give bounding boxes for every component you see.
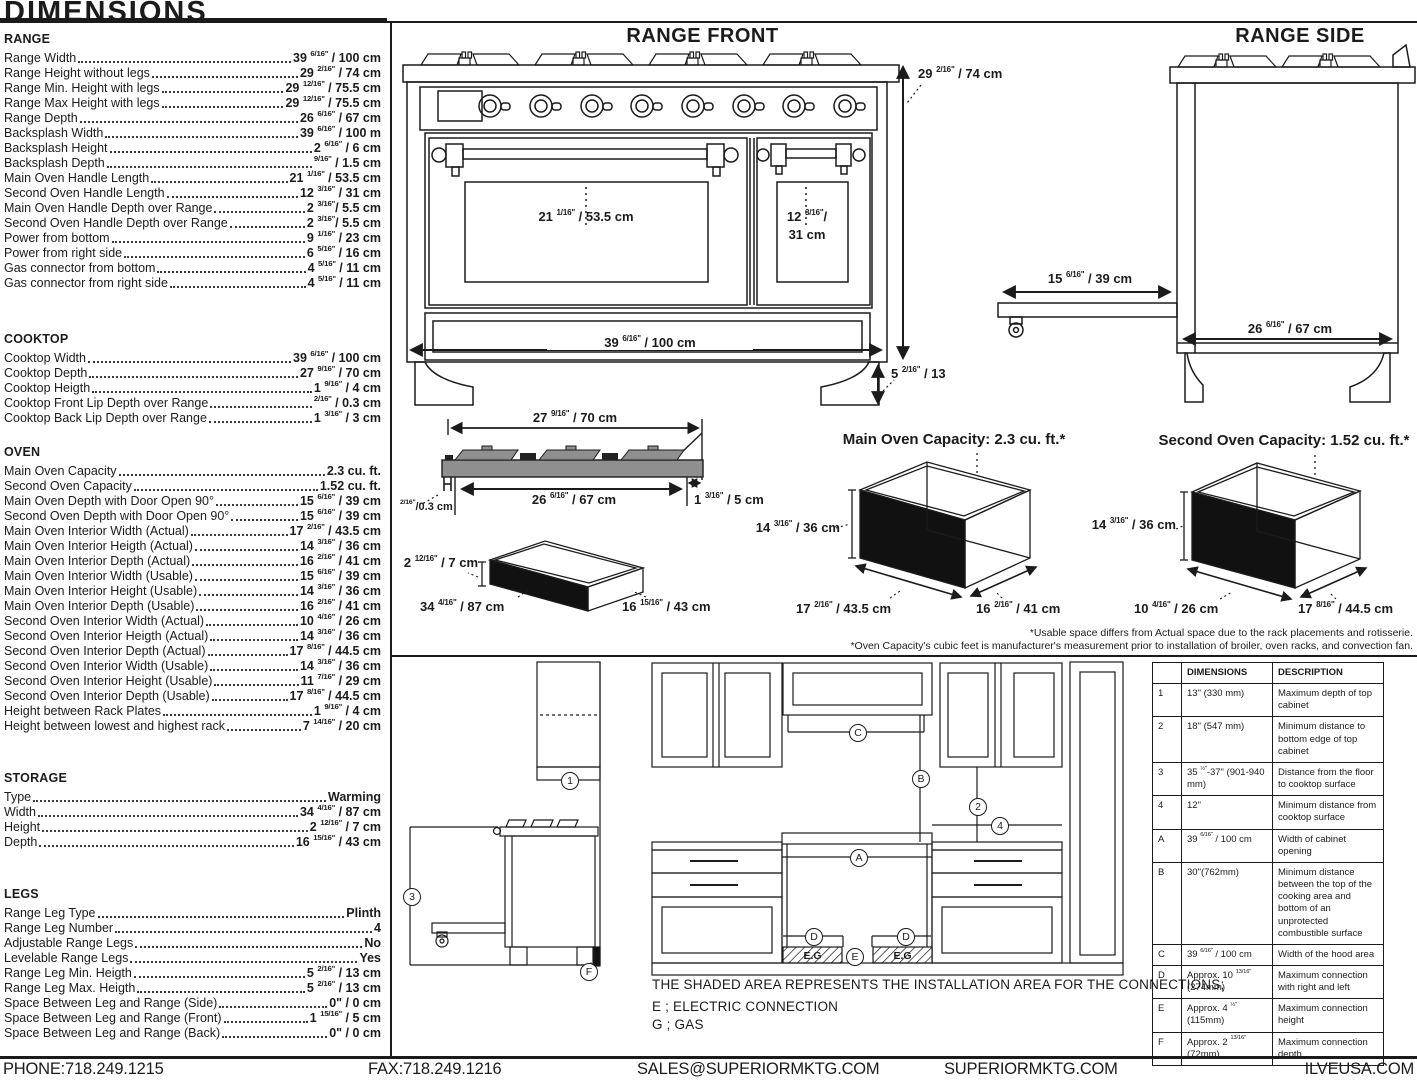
footnote-capacity: *Oven Capacity's cubic feet is manufactu…	[613, 640, 1413, 653]
main-oven-window	[465, 182, 708, 282]
spec-row: Gas connector from bottom 4 5/16" / 11 c…	[4, 260, 381, 275]
spec-label: Backsplash Height	[4, 141, 108, 155]
dotted-leader	[112, 241, 305, 243]
spec-row: Adjustable Range Legs No	[4, 935, 381, 950]
label-leg-height: 5 2/16" / 13	[891, 366, 946, 381]
dotted-leader	[162, 106, 284, 108]
spec-value: 14 3/16" / 36 cm	[300, 584, 381, 598]
table-cell-id: 4	[1153, 796, 1182, 829]
dotted-leader	[196, 609, 298, 611]
spec-row: Second Oven Handle Depth over Range 2 3/…	[4, 215, 381, 230]
burner-profile	[455, 446, 684, 460]
label-second-oven-width: 10 4/16" / 26 cm	[1134, 601, 1218, 616]
spec-value: 16 15/16" / 43 cm	[296, 835, 381, 849]
label-second-oven-height: 14 3/16" / 36 cm	[1090, 517, 1176, 532]
spec-value: 14 3/16" / 36 cm	[300, 659, 381, 673]
footer-website: SUPERIORMKTG.COM	[944, 1060, 1118, 1079]
side-view-range-body	[505, 836, 595, 947]
dotted-leader	[162, 91, 284, 93]
table-row: 3 35 ½"-37" (901-940 mm) Distance from t…	[1153, 762, 1384, 795]
spec-label: Main Oven Depth with Door Open 90°	[4, 494, 214, 508]
dotted-leader	[210, 669, 298, 671]
spec-label: Main Oven Handle Length	[4, 171, 149, 185]
label-range-height: 29 2/16" / 74 cm	[918, 66, 1002, 81]
label-back-lip: 1 3/16" / 5 cm	[694, 492, 764, 507]
spec-label: Height	[4, 820, 40, 834]
table-cell-description: Maximum connection height	[1273, 999, 1384, 1032]
spec-value: 34 4/16" / 87 cm	[300, 805, 381, 819]
spec-label: Main Oven Interior Height (Usable)	[4, 584, 197, 598]
control-panel	[420, 87, 877, 130]
marker-circle-2: 2	[969, 798, 987, 816]
section-header: RANGE	[4, 32, 381, 50]
label-drawer-extension: 15 6/16" / 39 cm	[1010, 271, 1170, 286]
range-front-drawing	[395, 25, 1010, 423]
table-cell-description: Distance from the floor to cooktop surfa…	[1273, 762, 1384, 795]
table-row: C 39 6/16" / 100 cm Width of the hood ar…	[1153, 944, 1384, 965]
spec-row: Main Oven Interior Width (Usable) 15 6/1…	[4, 568, 381, 583]
spec-label: Second Oven Interior Width (Actual)	[4, 614, 204, 628]
spec-row: Range Min. Height with legs 29 12/16" / …	[4, 80, 381, 95]
table-cell-id: 2	[1153, 717, 1182, 762]
spec-value: 11 7/16" / 29 cm	[301, 674, 381, 688]
spec-row: Second Oven Interior Width (Usable) 14 3…	[4, 658, 381, 673]
main-oven-handle	[432, 144, 738, 176]
spec-label: Second Oven Handle Length	[4, 186, 165, 200]
spec-row: Main Oven Handle Length 21 1/16" / 53.5 …	[4, 170, 381, 185]
label-main-oven-width: 17 2/16" / 43.5 cm	[796, 601, 891, 616]
dotted-leader	[42, 830, 308, 832]
spec-row: Height between lowest and highest rack 7…	[4, 718, 381, 733]
table-cell-id: B	[1153, 862, 1182, 944]
dotted-leader	[107, 166, 312, 168]
section-header: STORAGE	[4, 771, 381, 789]
label-second-oven-depth: 17 8/16" / 44.5 cm	[1298, 601, 1393, 616]
table-cell-dimension: Approx. 4 ½" (115mm)	[1182, 999, 1273, 1032]
dotted-leader	[110, 151, 312, 153]
spec-value: 1.52 cu. ft.	[320, 479, 381, 493]
spec-label: Range Leg Max. Heigth	[4, 981, 135, 995]
spec-value: 39 6/16" / 100 cm	[293, 51, 381, 65]
spec-value: 14 3/16" / 36 cm	[300, 629, 381, 643]
table-cell-dimension: Approx. 10 13/16" (274mm)	[1182, 965, 1273, 998]
backsplash-profile	[1393, 45, 1410, 67]
spec-section-legs: LEGS Range Leg Type Plinth Range Leg Num…	[4, 887, 381, 1040]
spec-label: Main Oven Handle Depth over Range	[4, 201, 212, 215]
table-cell-dimension: 39 6/16" / 100 cm	[1182, 944, 1273, 965]
spec-row: Range Width 39 6/16" / 100 cm	[4, 50, 381, 65]
spec-row: Main Oven Handle Depth over Range 2 3/16…	[4, 200, 381, 215]
spec-label: Width	[4, 805, 36, 819]
spec-rows-storage: Type Warming Width 34 4/16" / 87 cm Heig…	[4, 789, 381, 849]
marker-circle-a: A	[850, 849, 868, 867]
range-front-title: RANGE FRONT	[395, 25, 1010, 48]
dotted-leader	[231, 519, 298, 521]
spec-section-range: RANGE Range Width 39 6/16" / 100 cm Rang…	[4, 32, 381, 290]
table-body: 1 13" (330 mm) Maximum depth of top cabi…	[1153, 684, 1384, 1066]
table-row: 2 18" (547 mm) Minimum distance to botto…	[1153, 717, 1384, 762]
side-cooktop-lip	[1170, 67, 1415, 83]
marker-circle-d-right: D	[897, 928, 915, 946]
label-cooktop-bottom-width: 26 6/16" / 67 cm	[474, 492, 674, 507]
spec-row: Range Leg Max. Heigth 5 2/16" / 13 cm	[4, 980, 381, 995]
footer-fax: FAX:718.249.1216	[368, 1060, 502, 1079]
dotted-leader	[210, 639, 298, 641]
spec-value: 17 8/16" / 44.5 cm	[290, 689, 381, 703]
spec-label: Gas connector from right side	[4, 276, 168, 290]
dotted-leader	[214, 684, 298, 686]
spec-label: Main Oven Interior Depth (Actual)	[4, 554, 190, 568]
dotted-leader	[130, 961, 357, 963]
dotted-leader	[33, 800, 326, 802]
dotted-leader	[119, 474, 325, 476]
spec-label: Levelable Range Legs	[4, 951, 128, 965]
spec-row: Range Height without legs 29 2/16" / 74 …	[4, 65, 381, 80]
dotted-leader	[224, 1021, 308, 1023]
spec-row: Space Between Leg and Range (Front) 1 15…	[4, 1010, 381, 1025]
table-cell-dimension: 39 6/16" / 100 cm	[1182, 829, 1273, 862]
table-header-empty	[1153, 663, 1182, 684]
spec-value: 39 6/16" / 100 cm	[293, 351, 381, 365]
spec-value: 1 9/16" / 4 cm	[314, 381, 381, 395]
footer-brand-site: ILVEUSA.COM	[1305, 1060, 1414, 1079]
spec-value: 16 2/16" / 41 cm	[300, 554, 381, 568]
installation-note: THE SHADED AREA REPRESENTS THE INSTALLAT…	[652, 977, 1224, 992]
label-second-handle-length-1: 12 3/16"/	[757, 209, 857, 224]
label-storage-width: 34 4/16" / 87 cm	[420, 599, 504, 614]
dotted-leader	[212, 699, 288, 701]
spec-value: 15 6/16" / 39 cm	[300, 509, 381, 523]
spec-row: Second Oven Interior Width (Actual) 10 4…	[4, 613, 381, 628]
spec-label: Second Oven Interior Depth (Usable)	[4, 689, 210, 703]
label-range-width: 39 6/16" / 100 cm	[547, 335, 753, 350]
spec-section-storage: STORAGE Type Warming Width 34 4/16" / 87…	[4, 771, 381, 849]
dimensions-sheet: DIMENSIONS RANGE Range Width 39 6/16" / …	[0, 0, 1417, 1080]
spec-row: Depth 16 15/16" / 43 cm	[4, 834, 381, 849]
dotted-leader	[157, 271, 305, 273]
shaded-area-label-right: E.G	[873, 950, 932, 962]
spec-value: 7 14/16" / 20 cm	[303, 719, 381, 733]
spec-label: Adjustable Range Legs	[4, 936, 133, 950]
table-cell-dimension: 35 ½"-37" (901-940 mm)	[1182, 762, 1273, 795]
spec-value: 12 3/16" / 31 cm	[300, 186, 381, 200]
install-front-panel: C B 2 4 A D D E E.G E.G	[650, 660, 1145, 980]
spec-row: Second Oven Depth with Door Open 90° 15 …	[4, 508, 381, 523]
spec-value: 2/16" / 0.3 cm	[314, 396, 381, 410]
range-side-body	[998, 45, 1415, 402]
dotted-leader	[78, 61, 291, 63]
front-lip-profile	[444, 477, 451, 491]
display	[438, 91, 482, 121]
spec-value: 29 2/16" / 74 cm	[300, 66, 381, 80]
table-row: A 39 6/16" / 100 cm Width of cabinet ope…	[1153, 829, 1384, 862]
table-row: E Approx. 4 ½" (115mm) Maximum connectio…	[1153, 999, 1384, 1032]
spec-row: Cooktop Depth 27 9/16" / 70 cm	[4, 365, 381, 380]
main-oven-capacity-title: Main Oven Capacity: 2.3 cu. ft.*	[824, 431, 1084, 448]
spec-row: Backsplash Height 2 6/16" / 6 cm	[4, 140, 381, 155]
spec-value: 15 6/16" / 39 cm	[300, 569, 381, 583]
spec-row: Cooktop Width 39 6/16" / 100 cm	[4, 350, 381, 365]
spec-value: 29 12/16" / 75.5 cm	[285, 81, 381, 95]
footer-phone: PHONE:718.249.1215	[3, 1060, 164, 1079]
spec-label: Range Leg Min. Heigth	[4, 966, 132, 980]
table-cell-description: Width of cabinet opening	[1273, 829, 1384, 862]
spec-row: Height between Rack Plates 1 9/16" / 4 c…	[4, 703, 381, 718]
spec-row: Main Oven Interior Height (Usable) 14 3/…	[4, 583, 381, 598]
table-cell-description: Minimum distance to bottom edge of top c…	[1273, 717, 1384, 762]
shaded-area-label-left: E.G	[783, 950, 842, 962]
spec-value: 2 6/16" / 6 cm	[314, 141, 381, 155]
table-row: D Approx. 10 13/16" (274mm) Maximum conn…	[1153, 965, 1384, 998]
install-front-art	[652, 662, 1123, 975]
spec-value: 2 12/16" / 7 cm	[310, 820, 381, 834]
label-main-oven-height: 14 3/16" / 36 cm	[740, 520, 840, 535]
spec-row: Second Oven Interior Height (Usable) 11 …	[4, 673, 381, 688]
spec-value: 27 9/16" / 70 cm	[300, 366, 381, 380]
spec-label: Second Oven Capacity	[4, 479, 132, 493]
range-side-title: RANGE SIDE	[1195, 25, 1405, 48]
spec-label: Space Between Leg and Range (Back)	[4, 1026, 220, 1040]
dotted-leader	[167, 196, 298, 198]
spec-value: 2 3/16"/ 5.5 cm	[307, 201, 381, 215]
footer-email: SALES@SUPERIORMKTG.COM	[637, 1060, 879, 1079]
dotted-leader	[195, 549, 298, 551]
second-oven-handle	[757, 144, 865, 174]
hood-cabinet	[783, 663, 932, 715]
burner-grates	[421, 52, 861, 65]
table-header-dimensions: DIMENSIONS	[1182, 663, 1273, 684]
spec-row: Cooktop Back Lip Depth over Range 1 3/16…	[4, 410, 381, 425]
marker-circle-c: C	[849, 724, 867, 742]
footnote-usable-space: *Usable space differs from Actual space …	[613, 627, 1413, 640]
table-cell-description: Width of the hood area	[1273, 944, 1384, 965]
dimensions-table: DIMENSIONS DESCRIPTION 1 13" (330 mm) Ma…	[1152, 662, 1384, 1066]
label-second-handle-length-2: 31 cm	[757, 227, 857, 242]
table-header-row: DIMENSIONS DESCRIPTION	[1153, 663, 1384, 684]
spec-row: Width 34 4/16" / 87 cm	[4, 804, 381, 819]
dotted-leader	[195, 579, 298, 581]
spec-label: Second Oven Interior Height (Usable)	[4, 674, 212, 688]
dotted-leader	[137, 991, 305, 993]
spec-label: Main Oven Interior Heigth (Actual)	[4, 539, 193, 553]
spec-label: Cooktop Front Lip Depth over Range	[4, 396, 208, 410]
spec-row: Second Oven Interior Depth (Actual) 17 8…	[4, 643, 381, 658]
spec-row: Backsplash Width 39 6/16" / 100 m	[4, 125, 381, 140]
spec-value: 14 3/16" / 36 cm	[300, 539, 381, 553]
table-cell-id: C	[1153, 944, 1182, 965]
spec-row: Main Oven Interior Depth (Usable) 16 2/1…	[4, 598, 381, 613]
table-cell-id: F	[1153, 1032, 1182, 1065]
dotted-leader	[222, 1036, 327, 1038]
spec-row: Gas connector from right side 4 5/16" / …	[4, 275, 381, 290]
spec-section-oven: OVEN Main Oven Capacity 2.3 cu. ft. Seco…	[4, 445, 381, 733]
spec-value: Plinth	[346, 906, 381, 920]
spec-value: 21 1/16" / 53.5 cm	[290, 171, 381, 185]
connection-zone-side	[594, 947, 600, 966]
spec-row: Second Oven Capacity 1.52 cu. ft.	[4, 478, 381, 493]
spec-label: Depth	[4, 835, 37, 849]
dotted-leader	[191, 534, 288, 536]
spec-value: 17 2/16" / 43.5 cm	[290, 524, 381, 538]
main-oven-box	[836, 453, 1036, 598]
spec-row: Range Leg Type Plinth	[4, 905, 381, 920]
spec-rows-cooktop: Cooktop Width 39 6/16" / 100 cm Cooktop …	[4, 350, 381, 425]
marker-circle-4: 4	[991, 817, 1009, 835]
spec-value: 5 2/16" / 13 cm	[307, 981, 381, 995]
dotted-leader	[216, 504, 298, 506]
spec-label: Range Min. Height with legs	[4, 81, 160, 95]
dotted-leader	[152, 76, 298, 78]
spec-label: Range Width	[4, 51, 76, 65]
right-leg	[821, 362, 879, 405]
side-view-cooktop	[500, 827, 598, 836]
range-front-panel: RANGE FRONT	[395, 25, 1010, 423]
marker-circle-1: 1	[561, 772, 579, 790]
spec-label: Power from right side	[4, 246, 122, 260]
main-oven-depth-arrow	[971, 567, 1036, 596]
plinth	[652, 963, 1123, 975]
open-drawer	[998, 303, 1177, 317]
spec-section-cooktop: COOKTOP Cooktop Width 39 6/16" / 100 cm …	[4, 332, 381, 425]
table-cell-id: E	[1153, 999, 1182, 1032]
install-side-art	[410, 662, 600, 966]
spec-label: Gas connector from bottom	[4, 261, 155, 275]
table-cell-dimension: 30"(762mm)	[1182, 862, 1273, 944]
second-oven-capacity-panel: Second Oven Capacity: 1.52 cu. ft.*	[1090, 425, 1417, 637]
spec-label: Type	[4, 790, 31, 804]
dotted-leader	[135, 946, 362, 948]
spec-value: 4 5/16" / 11 cm	[308, 276, 381, 290]
label-cooktop-top-width: 27 9/16" / 70 cm	[475, 410, 675, 425]
table-cell-dimension: Approx. 2 13/16" (72mm)	[1182, 1032, 1273, 1065]
dotted-leader	[210, 406, 312, 408]
table-cell-id: 1	[1153, 684, 1182, 717]
spec-label: Range Leg Type	[4, 906, 96, 920]
spec-row: Second Oven Interior Heigth (Actual) 14 …	[4, 628, 381, 643]
dotted-leader	[208, 654, 288, 656]
dotted-leader	[219, 1006, 327, 1008]
second-oven-box	[1176, 455, 1366, 599]
dotted-leader	[214, 211, 304, 213]
spec-label: Main Oven Interior Depth (Usable)	[4, 599, 194, 613]
spec-value: 29 12/16" / 75.5 cm	[285, 96, 381, 110]
spec-label: Second Oven Interior Depth (Actual)	[4, 644, 206, 658]
spec-row: Power from right side 6 5/16" / 16 cm	[4, 245, 381, 260]
spec-rows-oven: Main Oven Capacity 2.3 cu. ft. Second Ov…	[4, 463, 381, 733]
dotted-leader	[170, 286, 306, 288]
install-side-panel: 1 3 F	[400, 660, 650, 1052]
second-oven-depth-arrow	[1301, 568, 1366, 597]
section-header: OVEN	[4, 445, 381, 463]
marker-circle-e: E	[846, 948, 864, 966]
marker-circle-3: 3	[403, 888, 421, 906]
spec-row: Space Between Leg and Range (Back) 0" / …	[4, 1025, 381, 1040]
dotted-leader	[227, 729, 301, 731]
spec-row: Backsplash Depth 9/16" / 1.5 cm	[4, 155, 381, 170]
spec-label: Range Leg Number	[4, 921, 113, 935]
dotted-leader	[98, 916, 345, 918]
table-cell-id: 3	[1153, 762, 1182, 795]
label-main-handle-length: 21 1/16" / 53.5 cm	[486, 209, 686, 224]
spec-row: Main Oven Interior Width (Actual) 17 2/1…	[4, 523, 381, 538]
spec-label: Second Oven Interior Heigth (Actual)	[4, 629, 208, 643]
footnotes: *Usable space differs from Actual space …	[613, 627, 1413, 653]
spec-label: Backsplash Depth	[4, 156, 105, 170]
dotted-leader	[206, 624, 298, 626]
dotted-leader	[163, 714, 312, 716]
table-row: B 30"(762mm) Minimum distance between th…	[1153, 862, 1384, 944]
dotted-leader	[38, 815, 298, 817]
spec-label: Main Oven Capacity	[4, 464, 117, 478]
spec-label: Cooktop Back Lip Depth over Range	[4, 411, 207, 425]
spec-value: 1 3/16" / 3 cm	[314, 411, 381, 425]
spec-value: 1 15/16" / 5 cm	[310, 1011, 381, 1025]
spec-value: Warming	[328, 790, 381, 804]
spec-row: Power from bottom 9 1/16" / 23 cm	[4, 230, 381, 245]
table-cell-dimension: 12"	[1182, 796, 1273, 829]
dotted-leader	[199, 594, 298, 596]
spec-label: Range Height without legs	[4, 66, 150, 80]
spec-row: Range Depth 26 6/16" / 67 cm	[4, 110, 381, 125]
upper-left-cabinet	[652, 663, 782, 767]
spec-value: 10 4/16" / 26 cm	[300, 614, 381, 628]
spec-label: Second Oven Interior Width (Usable)	[4, 659, 208, 673]
dotted-leader	[39, 845, 294, 847]
spec-value: 2.3 cu. ft.	[327, 464, 381, 478]
spec-rows-legs: Range Leg Type Plinth Range Leg Number 4…	[4, 905, 381, 1040]
label-front-lip: 2/16"/0.3 cm	[400, 501, 453, 513]
gas-connection-note: G ; GAS	[652, 1017, 704, 1032]
spec-value: 26 6/16" / 67 cm	[300, 111, 381, 125]
spec-column: RANGE Range Width 39 6/16" / 100 cm Rang…	[4, 32, 381, 1040]
spec-row: Main Oven Interior Depth (Actual) 16 2/1…	[4, 553, 381, 568]
table-cell-dimension: 13" (330 mm)	[1182, 684, 1273, 717]
dotted-leader	[124, 256, 305, 258]
spec-label: Backsplash Width	[4, 126, 103, 140]
side-right-leg	[1350, 353, 1390, 402]
left-leg	[415, 362, 473, 405]
spec-value: No	[364, 936, 381, 950]
range-side-panel: RANGE SIDE	[1010, 25, 1417, 423]
install-side-drawing	[400, 660, 650, 1052]
dotted-leader	[89, 376, 298, 378]
electric-connection-note: E ; ELECTRIC CONNECTION	[652, 999, 838, 1014]
table-cell-description: Minimum distance from cooktop surface	[1273, 796, 1384, 829]
spec-label: Main Oven Interior Width (Actual)	[4, 524, 189, 538]
marker-circle-b: B	[912, 770, 930, 788]
dotted-leader	[230, 226, 305, 228]
spec-row: Second Oven Interior Depth (Usable) 17 8…	[4, 688, 381, 703]
spec-rows-range: Range Width 39 6/16" / 100 cm Range Heig…	[4, 50, 381, 290]
section-header: COOKTOP	[4, 332, 381, 350]
spec-row: Range Max Height with legs 29 12/16" / 7…	[4, 95, 381, 110]
dotted-leader	[134, 976, 305, 978]
table-cell-description: Maximum connection with right and left	[1273, 965, 1384, 998]
spec-label: Space Between Leg and Range (Front)	[4, 1011, 222, 1025]
label-main-oven-depth: 16 2/16" / 41 cm	[976, 601, 1060, 616]
spec-label: Space Between Leg and Range (Side)	[4, 996, 217, 1010]
cooktop-lip	[403, 65, 899, 82]
spec-label: Second Oven Handle Depth over Range	[4, 216, 228, 230]
table-cell-dimension: 18" (547 mm)	[1182, 717, 1273, 762]
spec-label: Second Oven Depth with Door Open 90°	[4, 509, 229, 523]
spec-value: 0" / 0 cm	[329, 996, 381, 1010]
vertical-divider	[390, 22, 392, 1056]
dotted-leader	[192, 564, 298, 566]
spec-label: Main Oven Interior Width (Usable)	[4, 569, 193, 583]
spec-row: Range Leg Number 4	[4, 920, 381, 935]
dotted-leader	[151, 181, 287, 183]
